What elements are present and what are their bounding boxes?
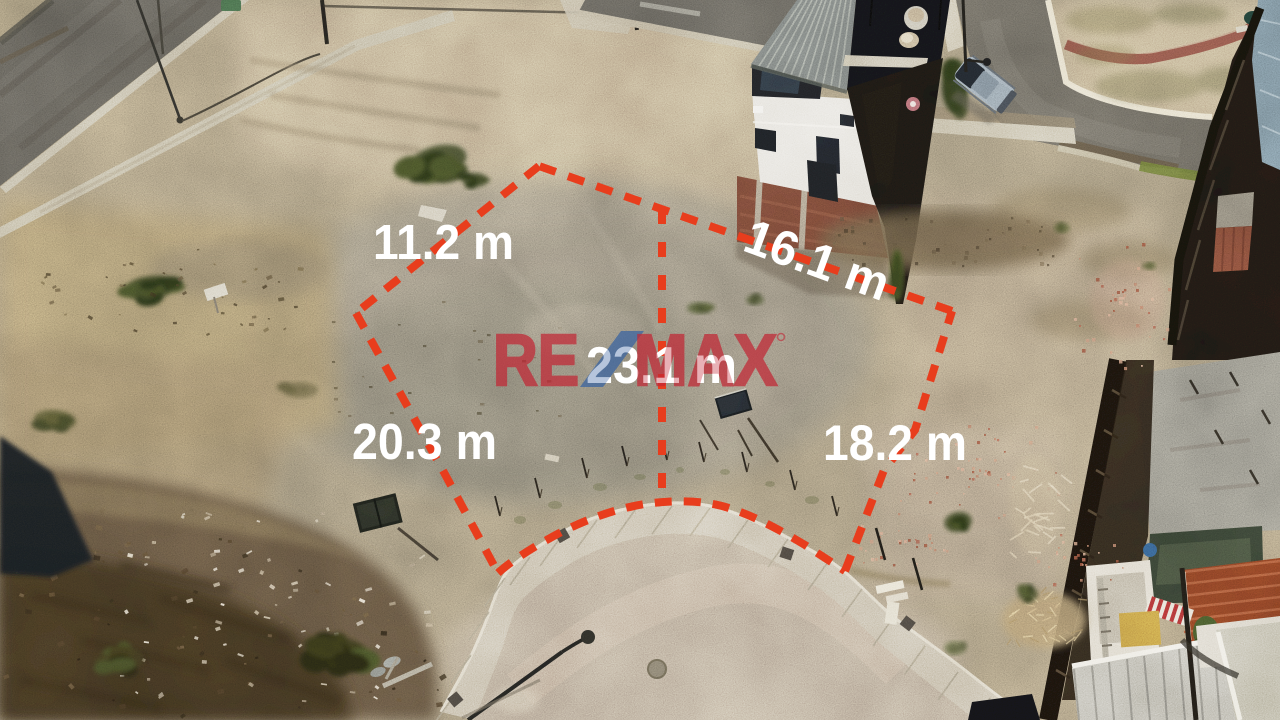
- svg-text:23.1 m: 23.1 m: [586, 337, 737, 395]
- svg-text:RE: RE: [493, 321, 579, 401]
- svg-text:18.2 m: 18.2 m: [823, 415, 967, 471]
- svg-text:20.3 m: 20.3 m: [352, 413, 497, 470]
- svg-text:11.2 m: 11.2 m: [373, 216, 514, 270]
